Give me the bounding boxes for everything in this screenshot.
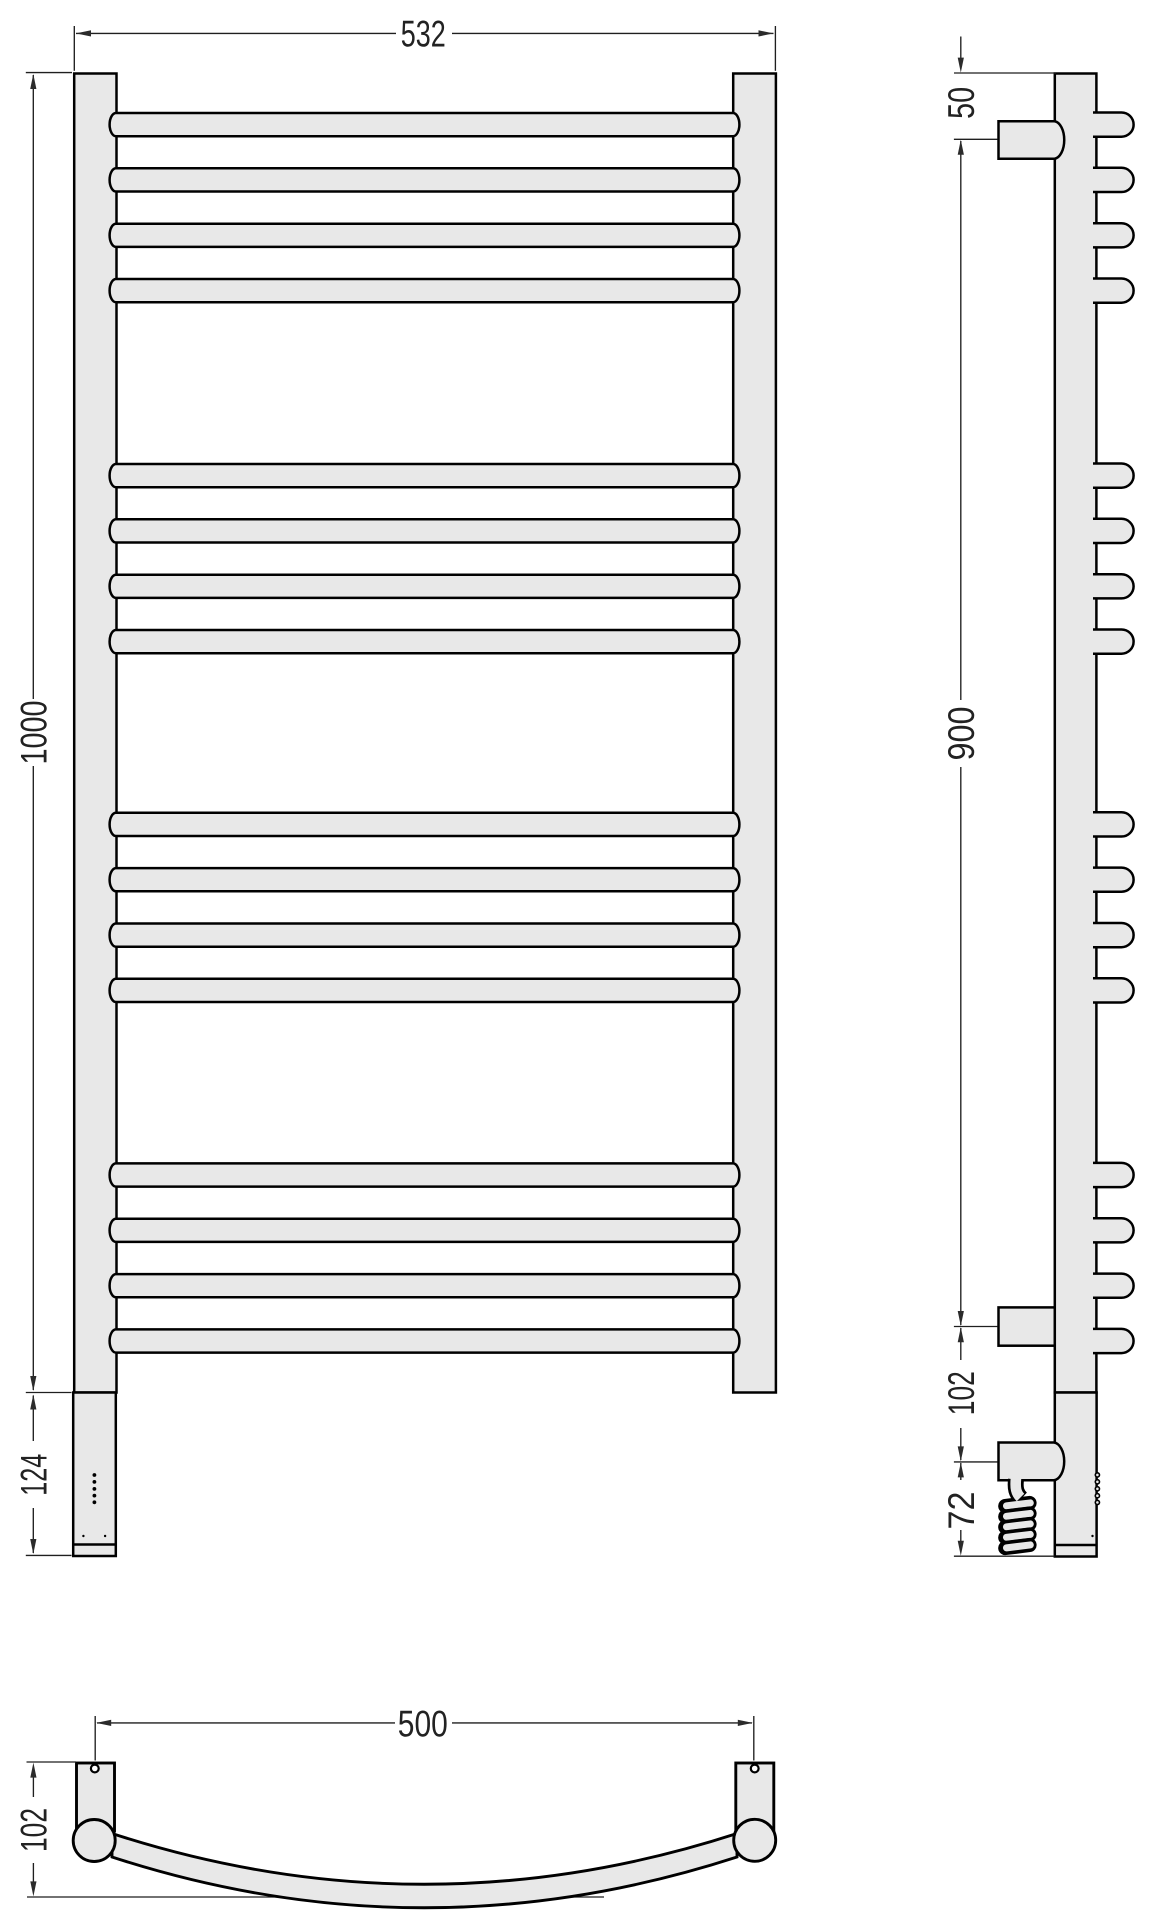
svg-text:50: 50 bbox=[941, 87, 982, 119]
svg-text:900: 900 bbox=[941, 707, 982, 761]
svg-text:500: 500 bbox=[398, 1704, 448, 1745]
svg-text:1000: 1000 bbox=[14, 701, 55, 765]
svg-text:124: 124 bbox=[14, 1454, 55, 1496]
svg-text:72: 72 bbox=[941, 1492, 982, 1530]
svg-text:532: 532 bbox=[401, 14, 446, 55]
svg-text:102: 102 bbox=[941, 1371, 982, 1415]
svg-text:102: 102 bbox=[14, 1808, 55, 1852]
